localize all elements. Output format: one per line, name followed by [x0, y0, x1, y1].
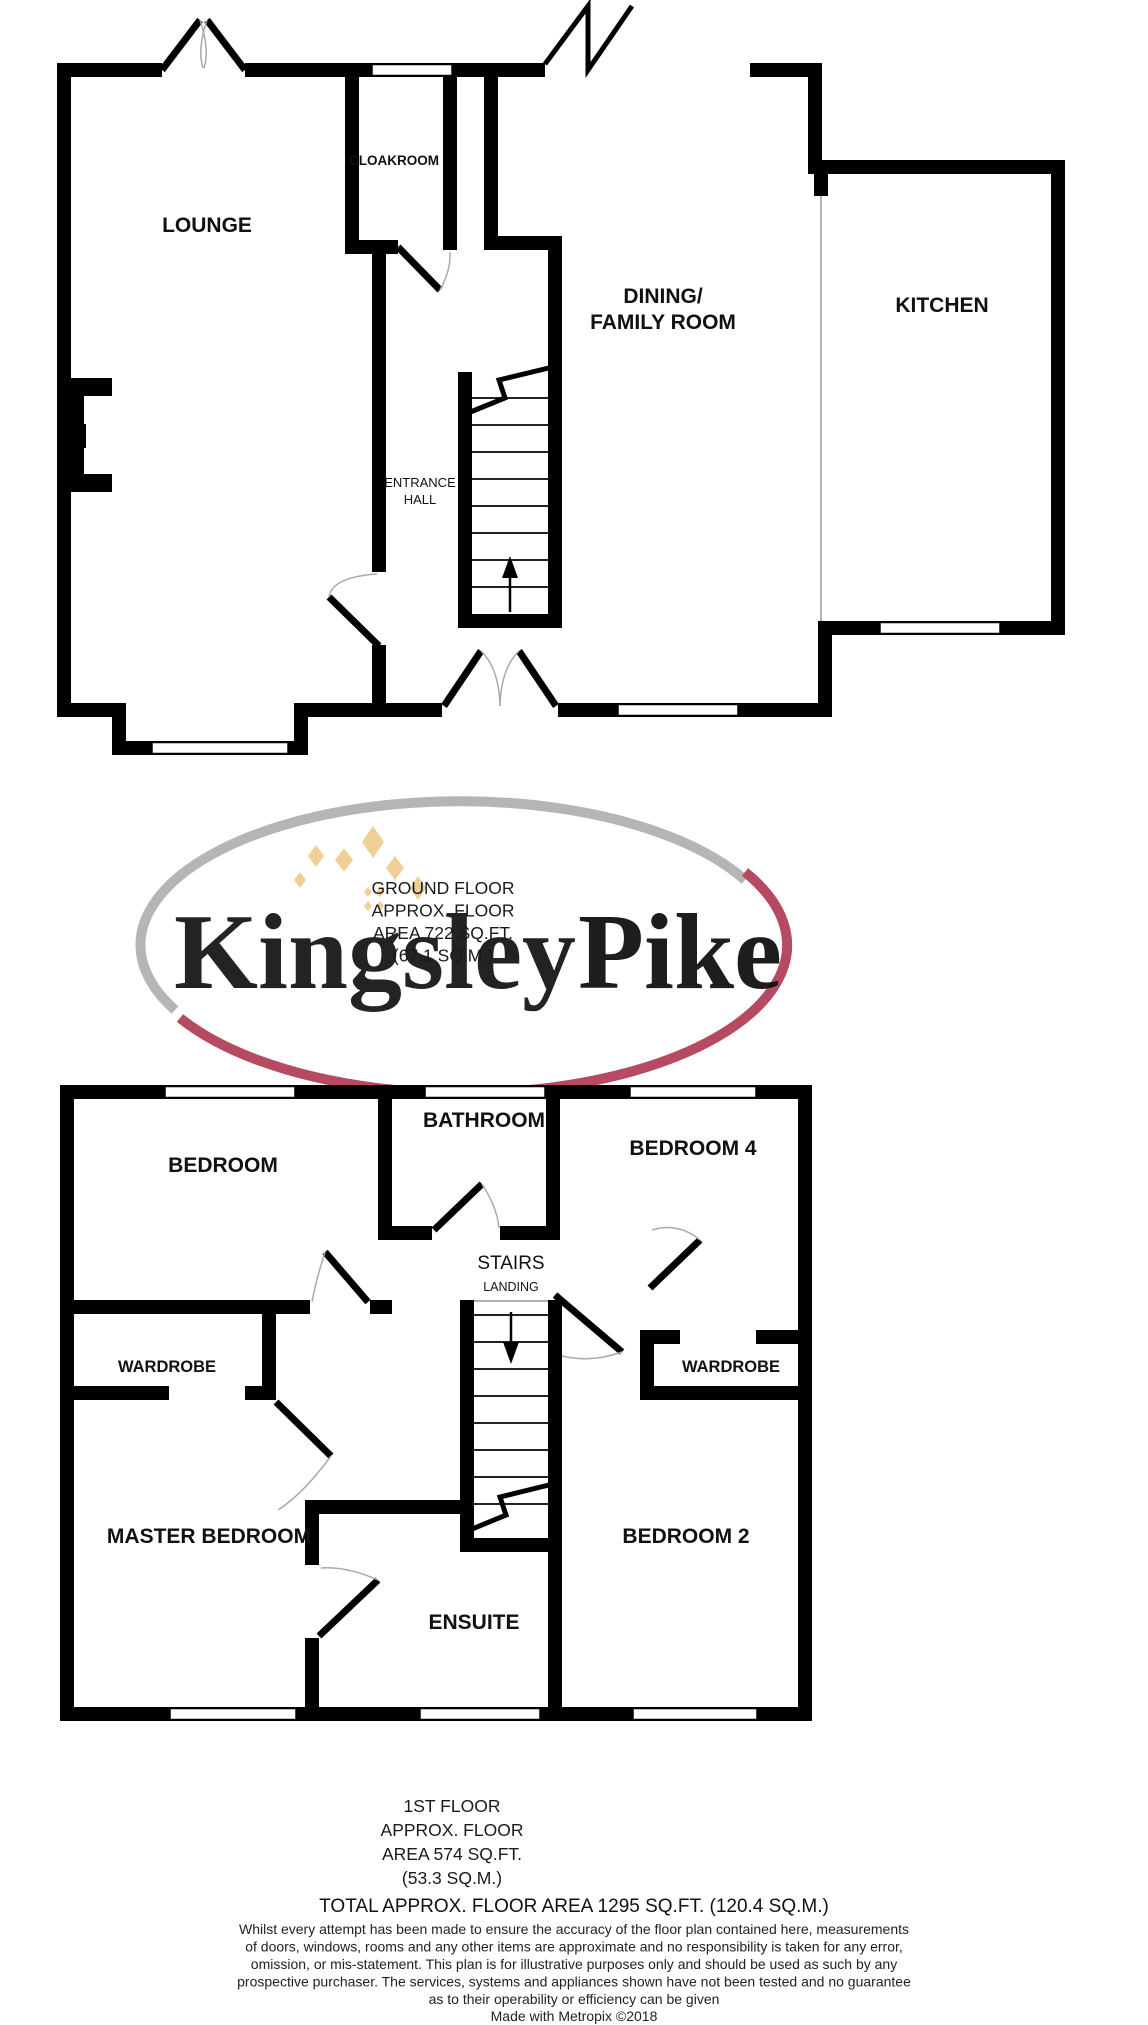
floorplan-canvas: LOUNGE CLOAKROOM ENTRANCE HALL DINING/ F…: [0, 0, 1148, 2025]
ff-summary-1: 1ST FLOOR: [404, 1796, 501, 1816]
label-wardrobe-right: WARDROBE: [682, 1358, 780, 1376]
master-bedroom-window: [170, 1709, 296, 1720]
ensuite-window: [420, 1709, 540, 1720]
fireplace-icon: [57, 378, 114, 492]
label-cloakroom: CLOAKROOM: [349, 153, 439, 168]
bedroom4-window: [630, 1087, 756, 1098]
bathroom-door: [434, 1184, 499, 1230]
label-stairs: STAIRS: [477, 1253, 544, 1274]
disclaimer-line-1: Whilst every attempt has been made to en…: [239, 1921, 909, 1937]
bedroom-window: [165, 1087, 295, 1098]
ensuite-door: [319, 1568, 378, 1636]
ff-summary-3: AREA 574 SQ.FT.: [382, 1844, 522, 1864]
first-floor-summary: 1ST FLOOR APPROX. FLOOR AREA 574 SQ.FT. …: [381, 1796, 524, 1888]
logo-text-pike: Pike: [578, 893, 782, 1012]
gf-summary-2: APPROX. FLOOR: [372, 901, 515, 921]
label-bedroom: BEDROOM: [168, 1154, 278, 1177]
label-entrance-hall-2: HALL: [404, 492, 437, 507]
label-lounge: LOUNGE: [162, 214, 252, 237]
stairs-ground: [458, 250, 562, 628]
ff-summary-4: (53.3 SQ.M.): [402, 1868, 502, 1888]
label-bedroom2: BEDROOM 2: [622, 1525, 749, 1548]
bedroom-door: [312, 1252, 368, 1302]
french-doors: [162, 20, 245, 70]
label-dining-2: FAMILY ROOM: [590, 311, 736, 334]
label-wardrobe-left: WARDROBE: [118, 1358, 216, 1376]
bay-window-glass: [152, 743, 288, 754]
bay-window: [112, 703, 308, 755]
cloakroom-door: [398, 247, 450, 290]
bedroom4-door: [650, 1228, 700, 1288]
kitchen-window: [880, 623, 1000, 634]
stair-break-line: [463, 366, 557, 415]
label-kitchen: KITCHEN: [895, 294, 988, 317]
wall-break-symbol: [545, 6, 632, 70]
label-ensuite: ENSUITE: [428, 1611, 519, 1634]
gf-summary-3: AREA 722 SQ.FT.: [373, 923, 513, 943]
label-dining-1: DINING/: [623, 285, 703, 308]
label-bedroom4: BEDROOM 4: [629, 1137, 757, 1160]
gf-summary-4: (67.1 SQ.M.): [393, 946, 493, 966]
front-door: [444, 651, 556, 706]
label-landing: LANDING: [483, 1280, 539, 1294]
dining-window: [618, 705, 738, 716]
master-bedroom-door: [276, 1402, 331, 1510]
cloakroom-window: [372, 65, 452, 76]
floorplan-page: LOUNGE CLOAKROOM ENTRANCE HALL DINING/ F…: [0, 0, 1148, 2025]
disclaimer-line-4: prospective purchaser. The services, sys…: [237, 1974, 911, 1990]
ground-floor-plan: LOUNGE CLOAKROOM ENTRANCE HALL DINING/ F…: [57, 6, 1065, 755]
disclaimer-line-5: as to their operability or efficiency ca…: [429, 1991, 720, 2007]
gf-summary-1: GROUND FLOOR: [372, 878, 515, 898]
lounge-door: [329, 574, 379, 646]
label-master-bedroom: MASTER BEDROOM: [107, 1525, 311, 1548]
bedroom2-door: [555, 1295, 622, 1359]
stairs-down-arrow-icon: [503, 1312, 519, 1364]
label-entrance-hall-1: ENTRANCE: [384, 475, 456, 490]
stairs-first: [460, 1300, 562, 1721]
bathroom-window: [425, 1087, 545, 1098]
ff-summary-2: APPROX. FLOOR: [381, 1820, 524, 1840]
disclaimer-line-2: of doors, windows, rooms and any other i…: [245, 1939, 903, 1955]
total-area-line: TOTAL APPROX. FLOOR AREA 1295 SQ.FT. (12…: [319, 1896, 829, 1917]
label-bathroom: BATHROOM: [423, 1109, 545, 1132]
stairs-up-arrow-icon: [502, 556, 518, 612]
disclaimer: Whilst every attempt has been made to en…: [237, 1921, 911, 2007]
bedroom2-window: [633, 1709, 757, 1720]
metropix-credit: Made with Metropix ©2018: [491, 2008, 658, 2024]
stair-break-line-first: [465, 1483, 557, 1532]
first-floor-plan: BEDROOM BATHROOM BEDROOM 4 WARDROBE WARD…: [60, 1085, 812, 1721]
disclaimer-line-3: omission, or mis-statement. This plan is…: [251, 1956, 897, 1972]
